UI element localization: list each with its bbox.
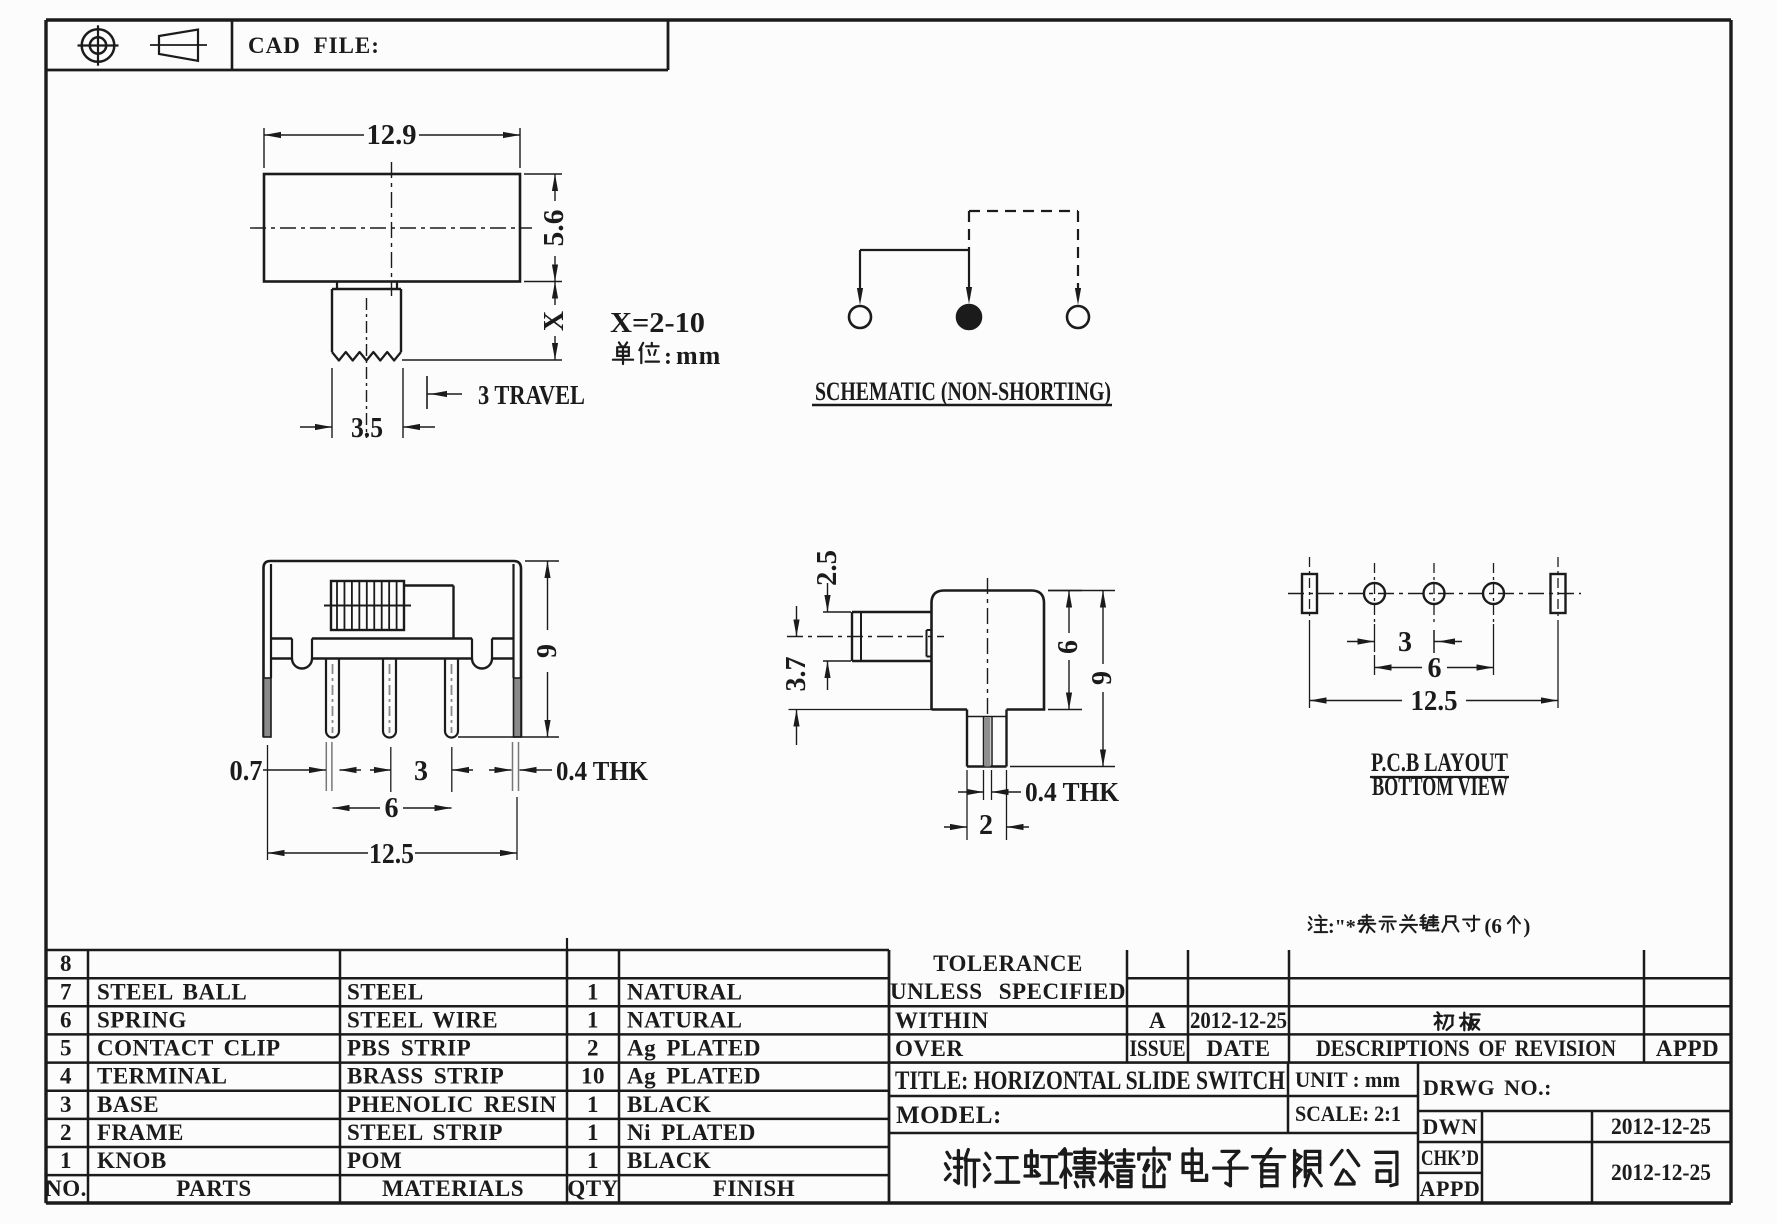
svg-text:6: 6 bbox=[60, 1007, 72, 1032]
svg-text:STEEL: STEEL bbox=[347, 979, 424, 1004]
svg-text:3: 3 bbox=[414, 756, 428, 787]
svg-text:6: 6 bbox=[1428, 653, 1442, 684]
svg-text:9: 9 bbox=[1087, 671, 1118, 685]
svg-text:CONTACT CLIP: CONTACT CLIP bbox=[97, 1036, 281, 1061]
svg-text:1: 1 bbox=[587, 1092, 599, 1117]
svg-text:SPRING: SPRING bbox=[97, 1007, 187, 1032]
svg-text:12.5: 12.5 bbox=[369, 839, 414, 870]
svg-text:3 TRAVEL: 3 TRAVEL bbox=[478, 380, 585, 410]
svg-text:): ) bbox=[1523, 914, 1530, 938]
svg-text:6: 6 bbox=[1053, 640, 1084, 654]
svg-text:FINISH: FINISH bbox=[713, 1176, 795, 1201]
svg-text:APPD: APPD bbox=[1420, 1176, 1481, 1201]
svg-text:2012-12-25: 2012-12-25 bbox=[1611, 1114, 1711, 1139]
svg-text:STEEL STRIP: STEEL STRIP bbox=[347, 1120, 503, 1145]
svg-text:WITHIN: WITHIN bbox=[895, 1008, 989, 1033]
svg-text:CHK’D: CHK’D bbox=[1421, 1145, 1479, 1170]
svg-text:1: 1 bbox=[587, 1148, 599, 1173]
svg-text:QTY: QTY bbox=[567, 1176, 618, 1201]
svg-text:A: A bbox=[1149, 1008, 1166, 1033]
svg-text:5.6: 5.6 bbox=[539, 210, 570, 247]
svg-text:SCHEMATIC (NON-SHORTING): SCHEMATIC (NON-SHORTING) bbox=[815, 377, 1111, 406]
svg-text:1: 1 bbox=[587, 979, 599, 1004]
svg-text:0.7: 0.7 bbox=[230, 756, 263, 787]
svg-text:BRASS STRIP: BRASS STRIP bbox=[347, 1064, 504, 1089]
svg-text::: : bbox=[664, 344, 673, 370]
svg-text:POM: POM bbox=[347, 1148, 402, 1173]
svg-text:3: 3 bbox=[60, 1092, 72, 1117]
svg-text:PHENOLIC RESIN: PHENOLIC RESIN bbox=[347, 1092, 557, 1117]
svg-text:2: 2 bbox=[979, 810, 993, 841]
svg-text:10: 10 bbox=[581, 1064, 605, 1089]
svg-text:0.4 THK: 0.4 THK bbox=[1025, 777, 1119, 807]
svg-text:TOLERANCE: TOLERANCE bbox=[933, 951, 1083, 976]
svg-text:DWN: DWN bbox=[1422, 1114, 1477, 1139]
svg-text:1: 1 bbox=[587, 1120, 599, 1145]
svg-text:2.5: 2.5 bbox=[812, 550, 843, 586]
svg-text:BASE: BASE bbox=[97, 1092, 159, 1117]
svg-text:7: 7 bbox=[60, 979, 72, 1004]
svg-text:0.4 THK: 0.4 THK bbox=[556, 756, 648, 786]
svg-text:X=2-10: X=2-10 bbox=[610, 308, 705, 339]
svg-text:mm: mm bbox=[676, 341, 721, 370]
svg-text:BLACK: BLACK bbox=[627, 1092, 711, 1117]
svg-text:1: 1 bbox=[60, 1148, 72, 1173]
svg-text:OVER: OVER bbox=[895, 1036, 963, 1061]
svg-text:6: 6 bbox=[385, 793, 399, 824]
svg-text:2012-12-25: 2012-12-25 bbox=[1611, 1160, 1711, 1185]
svg-text:KNOB: KNOB bbox=[97, 1148, 167, 1173]
svg-text:MODEL:: MODEL: bbox=[896, 1102, 1002, 1129]
svg-text:STEEL WIRE: STEEL WIRE bbox=[347, 1007, 498, 1032]
svg-text:NATURAL: NATURAL bbox=[627, 1007, 743, 1032]
svg-text:3: 3 bbox=[1398, 627, 1412, 658]
svg-text:PBS STRIP: PBS STRIP bbox=[347, 1036, 471, 1061]
svg-text:DRWG NO.:: DRWG NO.: bbox=[1423, 1075, 1552, 1100]
svg-text:9: 9 bbox=[532, 644, 563, 658]
svg-text:APPD: APPD bbox=[1656, 1036, 1719, 1061]
svg-text:(6: (6 bbox=[1484, 914, 1502, 938]
svg-text:X: X bbox=[539, 311, 570, 331]
svg-text:Ag PLATED: Ag PLATED bbox=[627, 1036, 761, 1061]
svg-text:SCALE: 2:1: SCALE: 2:1 bbox=[1295, 1101, 1401, 1126]
svg-text:5: 5 bbox=[60, 1036, 72, 1061]
svg-text:DESCRIPTIONS OF REVISION: DESCRIPTIONS OF REVISION bbox=[1316, 1036, 1616, 1061]
svg-text:2012-12-25: 2012-12-25 bbox=[1190, 1008, 1287, 1033]
svg-text:3.7: 3.7 bbox=[781, 657, 812, 692]
svg-text:1: 1 bbox=[587, 1007, 599, 1032]
svg-text:ISSUE: ISSUE bbox=[1130, 1036, 1186, 1061]
svg-text:FRAME: FRAME bbox=[97, 1120, 184, 1145]
svg-text:CAD FILE:: CAD FILE: bbox=[248, 33, 380, 58]
svg-text:STEEL BALL: STEEL BALL bbox=[97, 979, 247, 1004]
svg-text:PARTS: PARTS bbox=[176, 1176, 251, 1201]
svg-text:3.5: 3.5 bbox=[351, 413, 383, 444]
svg-text:12.5: 12.5 bbox=[1411, 686, 1458, 717]
svg-text:BLACK: BLACK bbox=[627, 1148, 711, 1173]
svg-text:12.9: 12.9 bbox=[367, 120, 417, 151]
svg-text:TITLE: HORIZONTAL SLIDE SWITCH: TITLE: HORIZONTAL SLIDE SWITCH bbox=[895, 1066, 1285, 1095]
svg-text:Ni PLATED: Ni PLATED bbox=[627, 1120, 756, 1145]
svg-text:DATE: DATE bbox=[1206, 1036, 1270, 1061]
svg-text:2: 2 bbox=[587, 1036, 599, 1061]
svg-text:NATURAL: NATURAL bbox=[627, 979, 743, 1004]
svg-text:Ag PLATED: Ag PLATED bbox=[627, 1064, 761, 1089]
svg-text:2: 2 bbox=[60, 1120, 72, 1145]
svg-text:UNLESS SPECIFIED: UNLESS SPECIFIED bbox=[890, 979, 1126, 1004]
svg-text:BOTTOM VIEW: BOTTOM VIEW bbox=[1372, 772, 1508, 801]
svg-text:MATERIALS: MATERIALS bbox=[382, 1176, 524, 1201]
svg-text:4: 4 bbox=[60, 1064, 72, 1089]
svg-text:UNIT : mm: UNIT : mm bbox=[1295, 1067, 1400, 1092]
svg-text:8: 8 bbox=[60, 951, 72, 976]
svg-text:NO.: NO. bbox=[45, 1176, 87, 1201]
svg-text:TERMINAL: TERMINAL bbox=[97, 1064, 228, 1089]
